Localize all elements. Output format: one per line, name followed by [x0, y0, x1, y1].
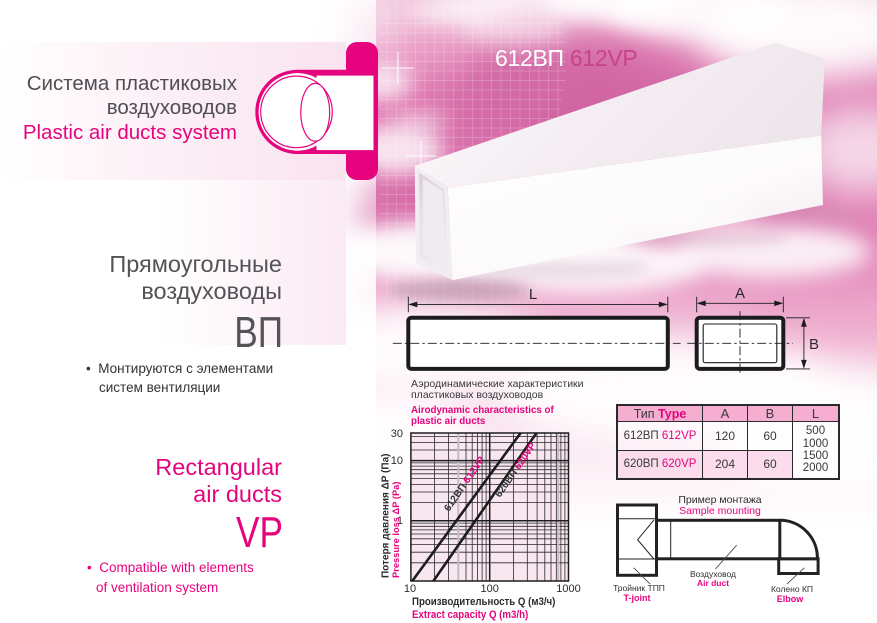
svg-text:B: B [809, 336, 819, 353]
svg-text:A: A [735, 285, 745, 302]
svg-text:1000: 1000 [556, 583, 580, 595]
svg-text:30: 30 [391, 428, 403, 440]
svg-text:L: L [529, 286, 537, 303]
svg-text:10: 10 [391, 455, 403, 467]
svg-text:100: 100 [481, 583, 499, 595]
svg-text:Pressure loss ΔP (Pa): Pressure loss ΔP (Pa) [390, 482, 401, 578]
svg-text:10: 10 [404, 583, 416, 595]
